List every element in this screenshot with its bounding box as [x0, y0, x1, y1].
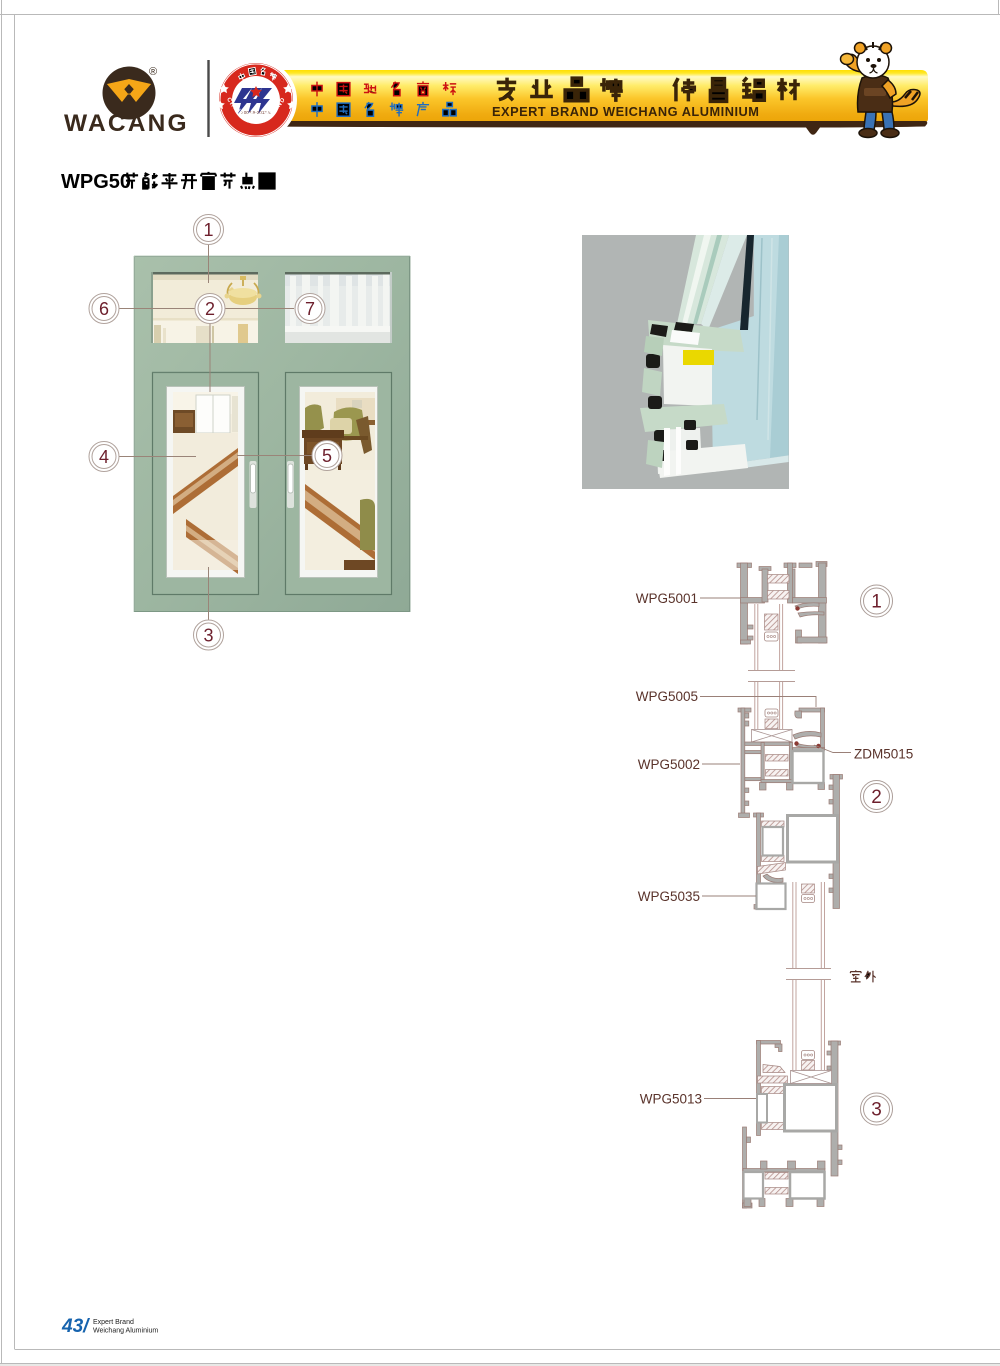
svg-text:1: 1 [203, 220, 213, 240]
svg-text:WPG5035: WPG5035 [638, 889, 700, 904]
svg-text:WPG5001: WPG5001 [636, 591, 698, 606]
svg-text:3: 3 [203, 626, 213, 646]
svg-text:ZDM5015: ZDM5015 [854, 747, 913, 762]
svg-text:WPG5005: WPG5005 [636, 689, 698, 704]
svg-text:WACANG: WACANG [64, 110, 189, 137]
svg-text:7: 7 [305, 299, 315, 319]
svg-text:Weichang Aluminium: Weichang Aluminium [93, 1328, 158, 1335]
svg-text:3: 3 [871, 1100, 882, 1121]
svg-text:WPG5002: WPG5002 [638, 757, 700, 772]
svg-text:®: ® [149, 66, 157, 78]
svg-text:WPG50: WPG50 [61, 171, 131, 193]
svg-text:5: 5 [322, 446, 332, 466]
svg-text:1: 1 [871, 592, 882, 613]
svg-text:2: 2 [871, 787, 882, 808]
svg-text:WPG5013: WPG5013 [640, 1092, 702, 1107]
svg-text:Expert Brand: Expert Brand [93, 1319, 134, 1326]
svg-text:2: 2 [205, 299, 215, 319]
svg-text:6: 6 [99, 299, 109, 319]
svg-text:43/: 43/ [61, 1316, 90, 1337]
svg-text:EXPERT BRAND WEICHANG ALUMINIU: EXPERT BRAND WEICHANG ALUMINIUM [492, 104, 759, 119]
svg-text:4: 4 [99, 447, 109, 467]
